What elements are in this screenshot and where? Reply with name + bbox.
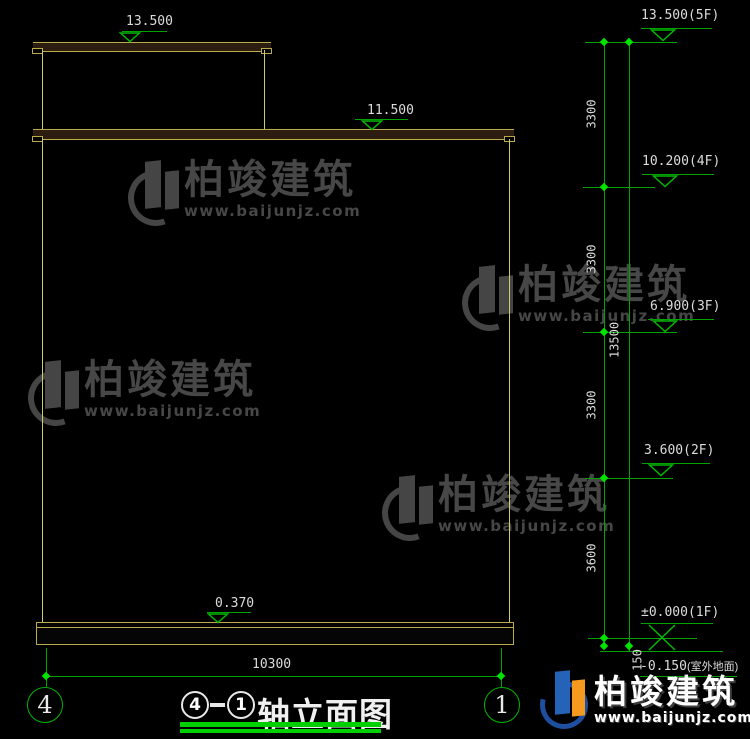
- watermark-building-icon: [128, 158, 184, 222]
- title-axis-circle-4: 4: [181, 691, 209, 719]
- watermark-url: www.baijunjz.com: [84, 402, 261, 420]
- tower-left-wall: [42, 50, 43, 130]
- watermark: 柏竣建筑 www.baijunjz.com: [28, 358, 261, 422]
- elevation-triangle-icon: [652, 320, 678, 333]
- elevation-triangle-icon: [652, 175, 678, 188]
- main-right-wall: [509, 139, 510, 623]
- elevation-triangle-icon: [648, 464, 674, 477]
- level-line-4f: [583, 187, 655, 188]
- watermark-brand: 柏竣建筑: [84, 358, 261, 402]
- plinth-inner-line: [37, 627, 513, 628]
- level-line-ground: [600, 651, 723, 652]
- watermark-text: 柏竣建筑 www.baijunjz.com: [518, 263, 695, 325]
- watermark-text: 柏竣建筑 www.baijunjz.com: [84, 358, 261, 420]
- watermark-brand: 柏竣建筑: [184, 158, 361, 202]
- tower-right-wall: [264, 50, 265, 130]
- elevation-triangle-icon: [119, 32, 141, 43]
- level-label-4f: 10.200(4F): [642, 155, 720, 169]
- watermark-text: 柏竣建筑 www.baijunjz.com: [184, 158, 361, 220]
- watermark-url: www.baijunjz.com: [184, 202, 361, 220]
- dimension-tick: [625, 38, 633, 46]
- tower-roof-slab: [33, 42, 271, 52]
- title-underline-bottom: [180, 729, 381, 733]
- level-label-3f: 6.900(3F): [650, 300, 720, 314]
- level-label-5f: 13.500(5F): [641, 9, 719, 23]
- baijun-building-icon: [540, 668, 594, 728]
- level-line-2f: [585, 478, 673, 479]
- inner-dimension-line: [604, 42, 605, 646]
- tower-roof-elevation-label: 13.500: [126, 15, 173, 29]
- zero-level-bowtie-icon: [648, 624, 676, 651]
- watermark: 柏竣建筑 www.baijunjz.com: [382, 473, 615, 537]
- bottom-dimension-label: 10300: [252, 658, 291, 672]
- elevation-drawing-canvas: 柏竣建筑 www.baijunjz.com 柏竣建筑 www.baijunjz.…: [0, 0, 750, 739]
- watermark: 柏竣建筑 www.baijunjz.com: [462, 263, 695, 327]
- vertical-dim-4f: 3300: [585, 245, 598, 274]
- vertical-dim-3f: 3300: [585, 391, 598, 420]
- extension-line-right: [501, 648, 502, 687]
- elevation-triangle-icon: [361, 120, 383, 131]
- title-axis-circle-1: 1: [227, 691, 255, 719]
- vertical-dim-5f: 3300: [585, 100, 598, 129]
- watermark-url: www.baijunjz.com: [438, 517, 615, 535]
- axis-bubble-1: 1: [484, 687, 520, 723]
- total-height-dim: 13500: [608, 322, 621, 358]
- plinth-band: [36, 622, 514, 645]
- footer-url: www.baijunjz.com: [594, 710, 750, 726]
- watermark: 柏竣建筑 www.baijunjz.com: [128, 158, 361, 222]
- level-label-2f: 3.600(2F): [644, 444, 714, 458]
- dimension-tick: [600, 642, 608, 650]
- extension-line-left: [46, 648, 47, 687]
- dimension-tick: [600, 38, 608, 46]
- title-underline-top: [180, 722, 381, 727]
- watermark-brand: 柏竣建筑: [438, 473, 615, 517]
- vertical-dim-2f: 3600: [585, 544, 598, 573]
- elevation-triangle-icon: [650, 29, 676, 42]
- elevation-triangle-icon: [207, 613, 229, 624]
- watermark-building-icon: [28, 358, 84, 422]
- axis-bubble-4: 4: [27, 687, 63, 723]
- footer-brand: 柏竣建筑: [594, 674, 750, 710]
- watermark-text: 柏竣建筑 www.baijunjz.com: [438, 473, 615, 535]
- dimension-tick: [600, 183, 608, 191]
- main-roof-elevation-label: 11.500: [367, 104, 414, 118]
- outer-dimension-line: [629, 42, 630, 651]
- watermark-building-icon: [382, 473, 438, 537]
- dimension-tick: [497, 672, 505, 680]
- main-roof-slab: [33, 129, 514, 140]
- footer-logo-text: 柏竣建筑 www.baijunjz.com: [594, 674, 750, 726]
- slab-end-cap: [261, 48, 272, 54]
- level-label-1f: ±0.000(1F): [641, 606, 719, 620]
- dimension-tick: [42, 672, 50, 680]
- footer-logo: 柏竣建筑 www.baijunjz.com: [540, 668, 750, 728]
- bottom-dimension-line: [46, 676, 502, 677]
- plinth-elevation-label: 0.370: [215, 597, 254, 611]
- title-dash: [210, 703, 225, 707]
- main-left-wall: [42, 138, 43, 623]
